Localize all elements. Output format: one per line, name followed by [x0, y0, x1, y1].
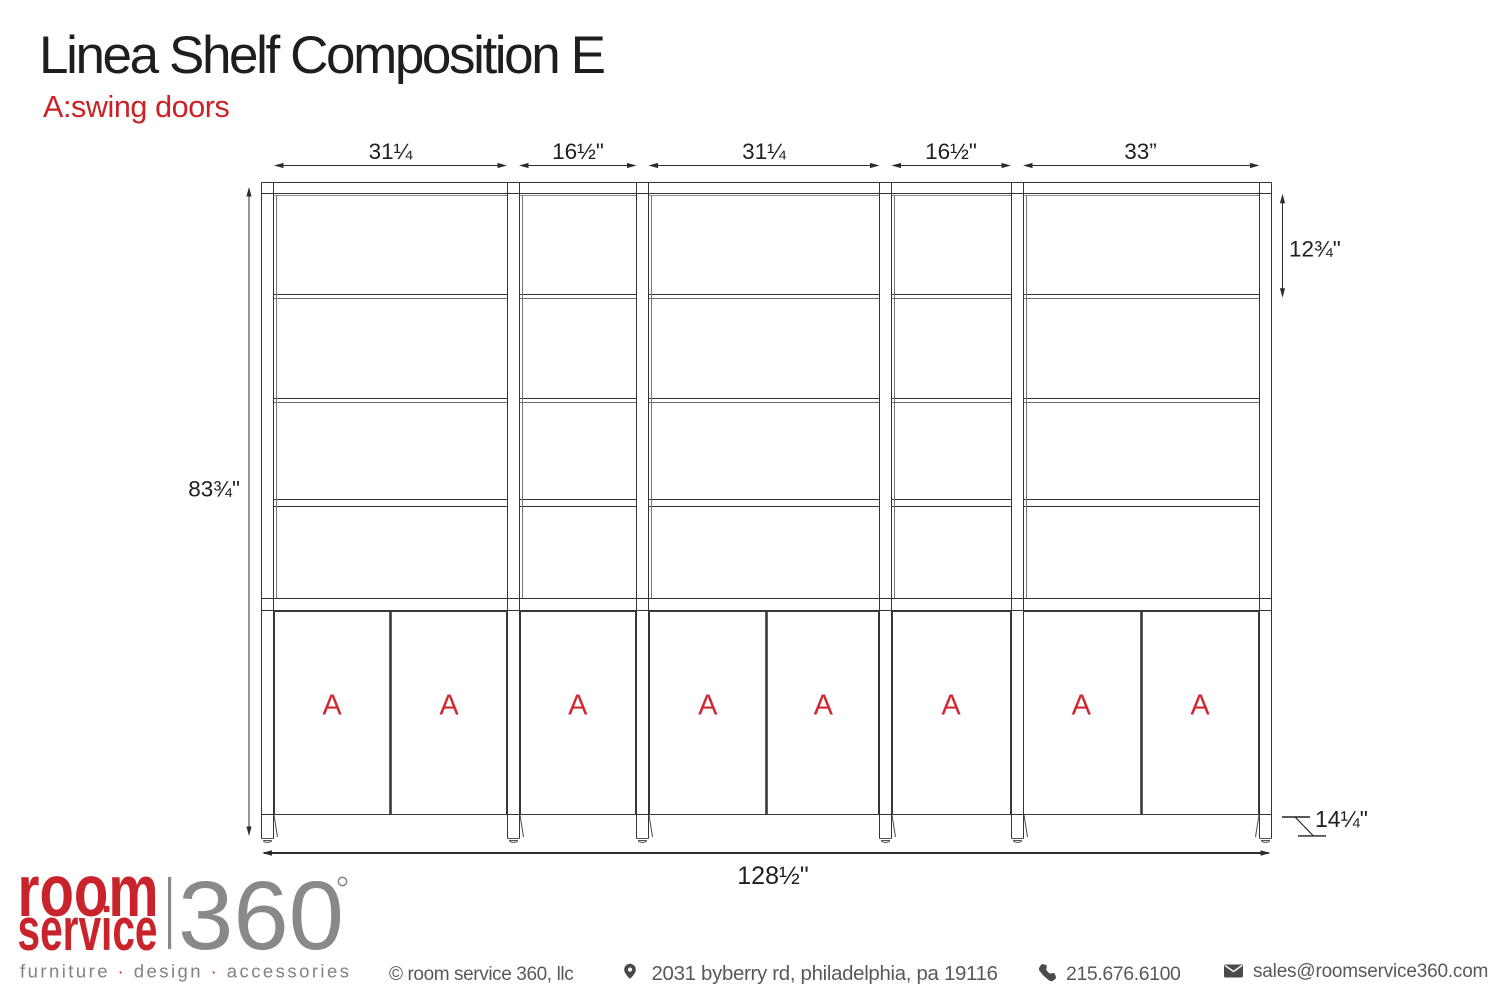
svg-text:A: A	[568, 690, 588, 722]
svg-text:A: A	[439, 690, 459, 722]
svg-text:sales@roomservice360.com: sales@roomservice360.com	[1253, 961, 1488, 982]
svg-text:31¼: 31¼	[742, 139, 786, 164]
svg-text:31¼: 31¼	[369, 139, 413, 164]
svg-text:A:swing doors: A:swing doors	[43, 90, 230, 124]
svg-text:service: service	[18, 896, 158, 963]
svg-text:360: 360	[178, 861, 344, 970]
svg-text:© room service 360, llc: © room service 360, llc	[389, 964, 573, 985]
svg-text:A: A	[322, 690, 342, 722]
svg-text:A: A	[941, 690, 961, 722]
svg-text:83¾": 83¾"	[188, 477, 240, 502]
svg-text:A: A	[814, 690, 834, 722]
svg-text:A: A	[698, 690, 718, 722]
svg-text:2031 byberry rd, philadelphia,: 2031 byberry rd, philadelphia, pa 19116	[652, 963, 998, 985]
svg-text:A: A	[1190, 690, 1210, 722]
svg-text:furniture · design · accessori: furniture · design · accessories	[20, 961, 349, 982]
svg-text:16½": 16½"	[925, 139, 977, 164]
svg-text:12¾": 12¾"	[1289, 237, 1341, 262]
svg-text:14¼": 14¼"	[1315, 806, 1368, 832]
svg-text:16½": 16½"	[552, 139, 604, 164]
svg-text:Linea Shelf Composition E: Linea Shelf Composition E	[39, 26, 605, 85]
svg-text:33”: 33”	[1124, 139, 1157, 164]
svg-text:128½": 128½"	[737, 862, 808, 890]
svg-text:A: A	[1072, 690, 1092, 722]
svg-text:215.676.6100: 215.676.6100	[1066, 963, 1181, 985]
